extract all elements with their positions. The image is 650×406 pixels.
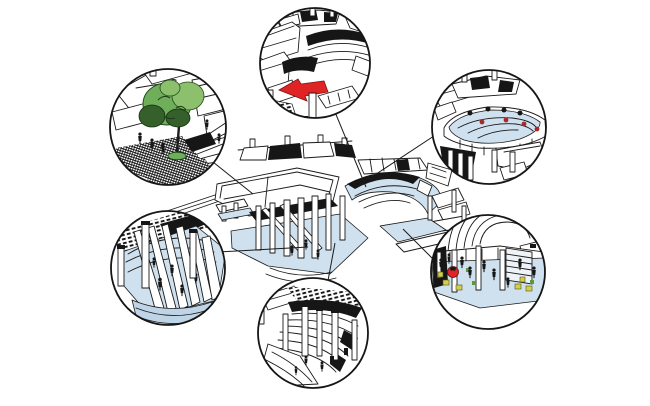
- callout-stepped-seating: [111, 210, 226, 325]
- drawing-canvas: [0, 0, 650, 406]
- callout-plaza-tree: [110, 56, 234, 190]
- callout-terrace-red-arrow: [256, 6, 372, 120]
- architectural-callout-diagram: [0, 0, 650, 406]
- callout-ribbed-structure: [258, 278, 368, 388]
- callout-roof-terrace-red-dots: [432, 70, 546, 184]
